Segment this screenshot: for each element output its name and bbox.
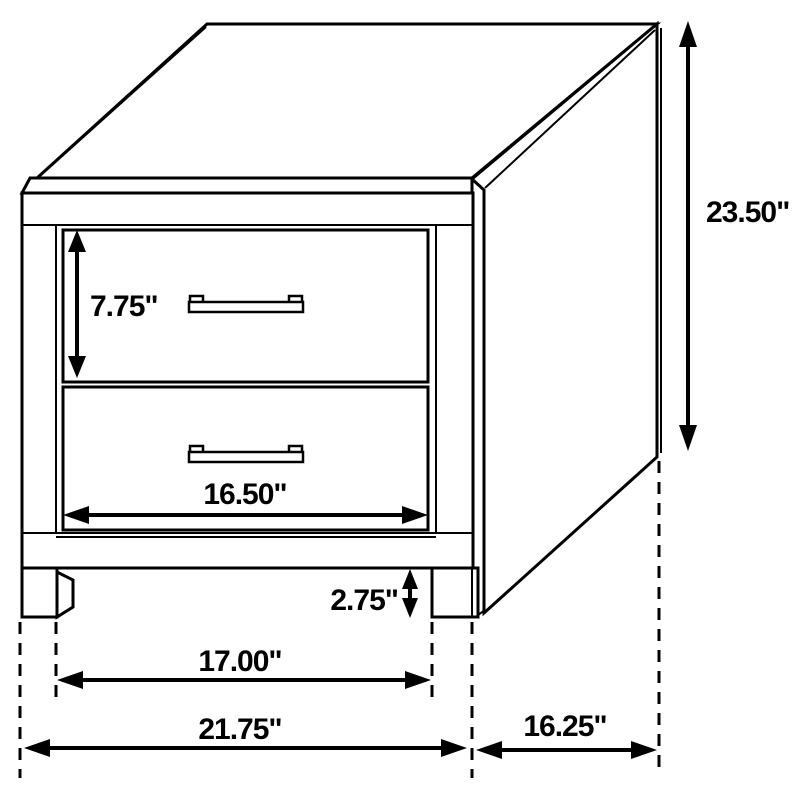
dimension-base-clearance: 2.75"	[330, 569, 418, 618]
dimension-label: 7.75"	[90, 290, 158, 323]
dimension-label: 21.75"	[198, 713, 281, 746]
dimension-label: 23.50"	[706, 196, 789, 229]
arrowhead-right-icon	[405, 671, 431, 689]
arrowhead-up-icon	[402, 569, 418, 589]
dimension-overall-width: 21.75"	[24, 713, 467, 757]
arrowhead-down-icon	[679, 425, 697, 451]
arrowhead-left-icon	[24, 739, 50, 757]
dimension-label: 16.50"	[203, 478, 286, 511]
dimension-label: 17.00"	[198, 645, 281, 678]
front-left-leg-side	[57, 572, 73, 617]
arrowhead-down-icon	[402, 598, 418, 618]
arrowhead-left-icon	[476, 741, 502, 759]
tabletop-front-edge	[22, 178, 472, 193]
arrowhead-right-icon	[441, 739, 467, 757]
arrowhead-left-icon	[57, 671, 83, 689]
dimension-side-depth: 16.25"	[476, 710, 657, 759]
handle-bar	[189, 452, 303, 462]
dimension-label: 2.75"	[330, 584, 398, 617]
front-left-leg	[22, 568, 57, 617]
arrowhead-right-icon	[631, 741, 657, 759]
handle-bar	[189, 302, 303, 312]
dimension-label: 16.25"	[523, 710, 606, 743]
diagram-canvas: 7.75" 23.50" 16.50" 2.75" 17	[0, 0, 800, 800]
dimension-leg-inner-span: 17.00"	[57, 645, 431, 689]
arrowhead-up-icon	[679, 21, 697, 47]
dimension-overall-height: 23.50"	[679, 21, 789, 451]
nightstand-dimension-diagram: 7.75" 23.50" 16.50" 2.75" 17	[0, 0, 800, 800]
